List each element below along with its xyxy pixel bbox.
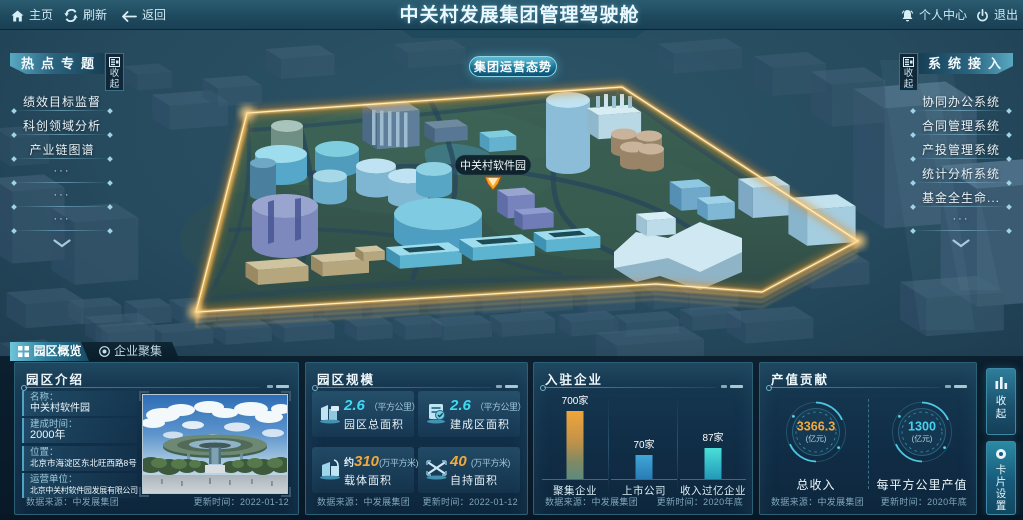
svg-text:3366.3: 3366.3 (797, 419, 835, 433)
svg-text:中关村软件园: 中关村软件园 (460, 158, 526, 172)
svg-text:(亿元): (亿元) (806, 434, 827, 444)
svg-text:(亿元): (亿元) (912, 434, 933, 444)
svg-text:1300: 1300 (908, 419, 936, 433)
